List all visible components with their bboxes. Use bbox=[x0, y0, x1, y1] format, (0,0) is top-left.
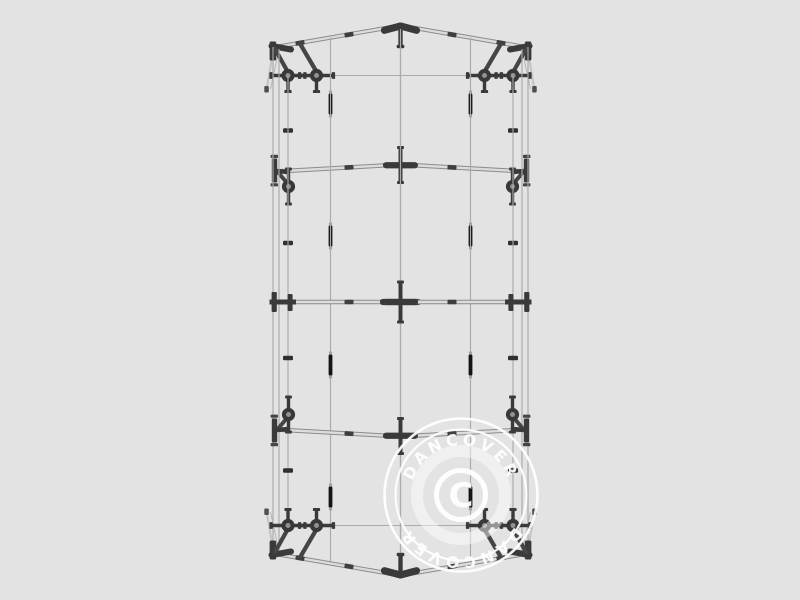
tent-frame-drawing: DANCOVERDANCOVERC bbox=[0, 0, 800, 600]
product-image-canvas: DANCOVERDANCOVERC bbox=[0, 0, 800, 600]
watermark-copyright-c: C bbox=[449, 476, 474, 516]
